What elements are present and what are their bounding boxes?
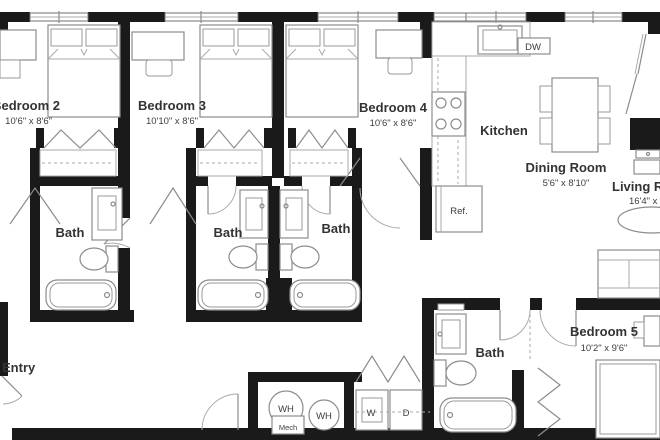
coffee-table-icon	[618, 207, 660, 233]
door-arc-icon	[202, 394, 238, 430]
dining-room-dims: 5'6" x 8'10"	[543, 178, 590, 189]
washer-label: W	[367, 408, 376, 419]
sink-vanity-icon	[240, 190, 268, 238]
chair-icon	[540, 118, 552, 144]
bed-icon	[286, 25, 358, 117]
living-furniture	[598, 150, 660, 298]
bath3-fixtures	[280, 190, 360, 310]
window-icon	[466, 11, 526, 23]
dishwasher-label: DW	[525, 42, 541, 53]
dining-furniture	[540, 78, 610, 152]
refrigerator-label: Ref.	[450, 206, 467, 217]
window-icon	[165, 11, 238, 23]
toilet-icon	[229, 244, 268, 270]
chair-icon	[540, 86, 552, 112]
dining-table-icon	[552, 78, 598, 152]
door-arc-icon	[500, 310, 530, 340]
desk-icon	[132, 32, 184, 76]
bath2-label: Bath	[214, 225, 243, 240]
sink-vanity-icon	[436, 304, 466, 354]
bedroom2-dims: 10'6" x 8'6"	[5, 116, 52, 127]
bathtub-icon	[198, 280, 268, 310]
sink-vanity-icon	[92, 188, 122, 240]
kitchen-label: Kitchen	[480, 123, 528, 138]
bath1-fixtures	[46, 188, 122, 310]
bifold-door-icon	[44, 130, 116, 148]
water-heater-1-label: WH	[278, 404, 294, 415]
tv-console-icon	[634, 150, 660, 174]
door-leaf-icon	[400, 158, 420, 186]
toilet-icon	[280, 244, 319, 270]
bath4-fixtures	[434, 304, 516, 432]
mech-label: Mech	[279, 423, 297, 432]
door-arc-icon	[360, 188, 400, 228]
bedroom4-label: Bedroom 4	[359, 100, 428, 115]
balcony-door-icon	[626, 34, 646, 114]
bifold-door-icon	[356, 356, 420, 382]
bedroom3-label: Bedroom 3	[138, 98, 206, 113]
bath4-label: Bath	[476, 345, 505, 360]
sink-vanity-icon	[280, 190, 308, 238]
bifold-door-icon	[204, 130, 264, 148]
bathtub-icon	[46, 280, 116, 310]
stove-icon	[432, 92, 465, 136]
bed-icon	[200, 25, 272, 117]
bedroom2-label: Bedroom 2	[0, 98, 60, 113]
entry-label: Entry	[2, 360, 36, 375]
window-icon	[30, 11, 88, 23]
door-leaf-icon	[2, 376, 22, 396]
sofa-icon	[598, 250, 660, 298]
kitchen-sink-icon	[478, 25, 522, 54]
living-room-dims: 16'4" x 1	[629, 196, 660, 207]
bedroom3-dims: 10'10" x 8'6"	[146, 116, 198, 127]
dryer-label: D	[403, 408, 410, 419]
window-icon	[434, 13, 466, 21]
bedroom5-label: Bedroom 5	[570, 324, 638, 339]
window-icon	[318, 11, 398, 23]
chair-icon	[598, 118, 610, 144]
bifold-door-icon	[538, 368, 560, 436]
bathtub-icon	[440, 398, 516, 432]
floor-plan-drawing: Bedroom 2 10'6" x 8'6" Bedroom 3 10'10" …	[0, 0, 660, 440]
bifold-door-icon	[296, 130, 348, 148]
water-heater-2-label: WH	[316, 411, 332, 422]
floor-plan: Bedroom 2 10'6" x 8'6" Bedroom 3 10'10" …	[0, 0, 660, 440]
bedroom4-dims: 10'6" x 8'6"	[370, 118, 417, 129]
bed-icon	[596, 360, 660, 438]
dining-room-label: Dining Room	[526, 160, 607, 175]
living-room-label: Living Room	[612, 179, 660, 194]
window-icon	[565, 11, 622, 23]
desk-icon	[376, 30, 422, 74]
toilet-icon	[434, 360, 476, 386]
bedroom5-dims: 10'2" x 9'6"	[581, 343, 628, 354]
bathtub-icon	[290, 280, 360, 310]
door-arc-icon	[208, 186, 236, 214]
bath3-label: Bath	[322, 221, 351, 236]
chair-icon	[598, 86, 610, 112]
door-arc-icon	[3, 396, 22, 404]
desk-icon	[0, 30, 36, 78]
toilet-icon	[80, 246, 118, 272]
bath1-label: Bath	[56, 225, 85, 240]
